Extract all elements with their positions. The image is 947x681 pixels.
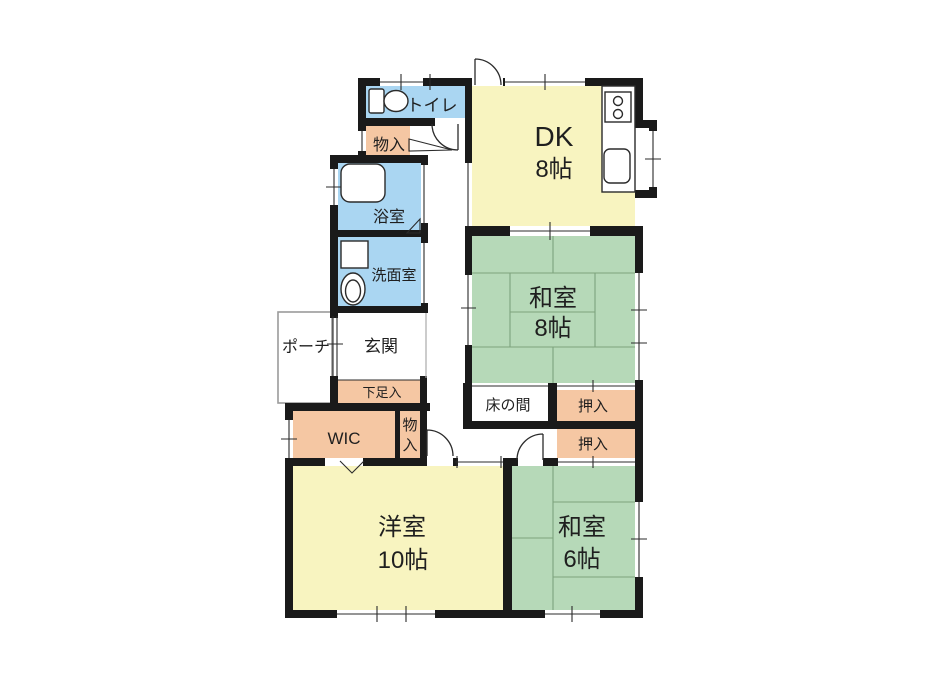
label-washitsu8: 和室 [529,285,577,312]
label-wic: WIC [327,429,360,448]
toilet-tank-icon [369,89,384,113]
floor-plan-page: トイレ 物入 浴室 洗面室 ポーチ 玄関 下足入 WIC 物 入 DK 8帖 和… [0,0,947,681]
label-yoshitsu: 洋室 [378,514,426,541]
label-dk: DK [535,121,574,152]
label-dk-size: 8帖 [535,156,572,183]
label-bathroom: 浴室 [373,208,405,226]
label-washitsu8-size: 8帖 [534,315,571,342]
bathtub-icon [341,164,385,202]
burner-icon [614,97,623,106]
label-storage-hall-2: 入 [402,437,417,454]
label-tokonoma: 床の間 [485,397,530,414]
door-arc-yoshitsu [427,430,453,456]
washbasin-inner-icon [346,280,361,302]
label-washroom: 洗面室 [371,267,416,284]
room-porch [278,312,332,403]
folding-door-storage-top [409,139,452,151]
floor-plan-diagram: トイレ 物入 浴室 洗面室 ポーチ 玄関 下足入 WIC 物 入 DK 8帖 和… [0,0,947,681]
label-washitsu6: 和室 [558,514,606,541]
label-yoshitsu-size: 10帖 [378,547,429,574]
label-toilet: トイレ [407,96,458,115]
toilet-bowl-icon [384,91,408,112]
burner-icon [614,110,623,119]
label-oshiire-upper: 押入 [578,398,608,415]
label-shoe-storage: 下足入 [362,385,401,400]
label-storage-hall-1: 物 [402,417,417,434]
label-porch: ポーチ [282,338,330,356]
label-washitsu6-size: 6帖 [563,546,600,573]
door-arc-washitsu6 [517,434,543,460]
back-door-opening [472,78,503,86]
washing-machine-icon [341,241,368,268]
sink-icon [604,149,630,183]
label-storage-top: 物入 [373,136,405,154]
label-oshiire-lower: 押入 [578,436,608,453]
label-entrance: 玄関 [364,337,398,356]
window-kitchen-right [645,131,661,187]
